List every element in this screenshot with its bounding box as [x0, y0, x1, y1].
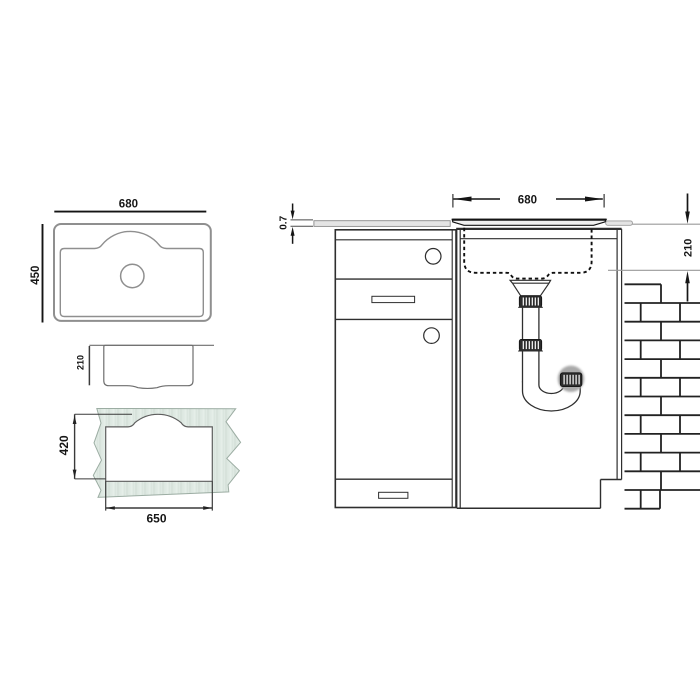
svg-text:420: 420	[57, 435, 71, 455]
svg-text:680: 680	[119, 199, 138, 211]
svg-text:680: 680	[518, 195, 537, 207]
svg-text:650: 650	[146, 512, 166, 526]
svg-text:0.7: 0.7	[279, 215, 290, 229]
svg-text:450: 450	[30, 266, 42, 285]
svg-text:210: 210	[76, 355, 86, 370]
svg-text:210: 210	[683, 239, 695, 257]
